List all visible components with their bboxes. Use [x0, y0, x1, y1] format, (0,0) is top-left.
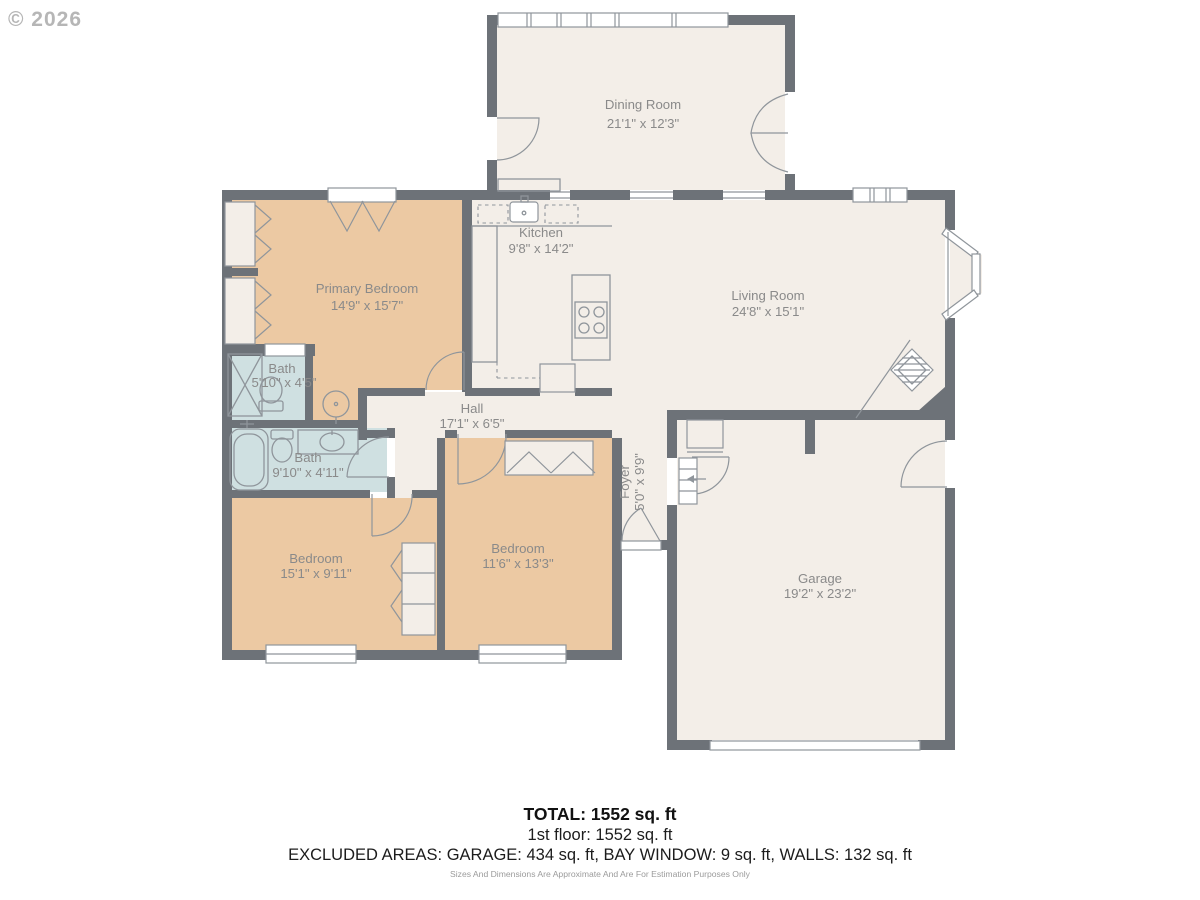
- copyright-watermark: © 2026: [8, 8, 82, 31]
- label-living-name: Living Room: [731, 288, 804, 303]
- primary-window: [328, 188, 396, 202]
- summary-floor1: 1st floor: 1552 sq. ft: [528, 826, 673, 844]
- label-foyer-dims: 5'0" x 9'9": [632, 453, 647, 511]
- bedroom-mid-closet: [505, 441, 595, 475]
- summary-excluded: EXCLUDED AREAS: GARAGE: 434 sq. ft, BAY …: [288, 846, 912, 864]
- label-bedroom-left-dims: 15'1" x 9'11": [280, 566, 352, 581]
- front-door-gap: [621, 541, 661, 550]
- bath-small-opening: [265, 344, 305, 356]
- floor-plan-page: Dining Room 21'1" x 12'3" Kitchen 9'8" x…: [0, 0, 1200, 900]
- label-garage-dims: 19'2" x 23'2": [784, 586, 857, 601]
- label-bedroom-mid-dims: 11'6" x 13'3": [482, 556, 554, 571]
- label-bath-large-name: Bath: [294, 450, 321, 465]
- garage-steps: [679, 458, 697, 504]
- hall-pantry: [540, 364, 575, 392]
- label-bedroom-mid-name: Bedroom: [491, 541, 545, 556]
- label-primary-dims: 14'9" x 15'7": [331, 298, 404, 313]
- label-foyer-name: Foyer: [617, 465, 632, 499]
- label-hall-dims: 17'1" x 6'5": [440, 416, 505, 431]
- dining-window-band: [498, 13, 728, 27]
- label-dining-dims: 21'1" x 12'3": [607, 116, 680, 131]
- label-bath-small-name: Bath: [268, 361, 295, 376]
- garage-door: [710, 741, 920, 750]
- label-kitchen-dims: 9'8" x 14'2": [509, 241, 574, 256]
- label-bedroom-left-name: Bedroom: [289, 551, 343, 566]
- floor-plan: Dining Room 21'1" x 12'3" Kitchen 9'8" x…: [0, 0, 1200, 900]
- summary-block: TOTAL: 1552 sq. ft 1st floor: 1552 sq. f…: [288, 804, 912, 879]
- label-bath-small-dims: 5'10" x 4'5": [252, 375, 317, 390]
- label-hall-name: Hall: [461, 401, 484, 416]
- summary-total: TOTAL: 1552 sq. ft: [524, 804, 677, 824]
- room-floors: [227, 25, 982, 740]
- garage-closet-niche: [687, 420, 723, 448]
- kitchen-sink: [510, 202, 538, 222]
- label-kitchen-name: Kitchen: [519, 225, 563, 240]
- label-primary-name: Primary Bedroom: [316, 281, 419, 296]
- living-window: [853, 188, 907, 202]
- label-bath-large-dims: 9'10" x 4'11": [272, 465, 344, 480]
- label-garage-name: Garage: [798, 571, 842, 586]
- summary-disclaimer: Sizes And Dimensions Are Approximate And…: [450, 869, 751, 879]
- label-dining-name: Dining Room: [605, 97, 681, 112]
- label-living-dims: 24'8" x 15'1": [732, 304, 805, 319]
